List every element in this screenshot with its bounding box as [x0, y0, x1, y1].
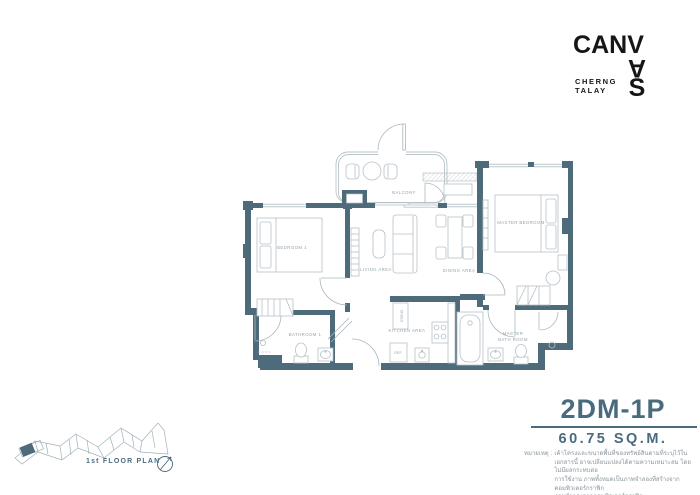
logo-letter: A	[591, 31, 609, 59]
master-bedroom-door	[483, 273, 505, 295]
living-label: LIVING AREA	[360, 267, 392, 272]
ac-unit	[347, 194, 363, 203]
bedroom1-label: BEDROOM 1	[277, 245, 307, 250]
divider-rule	[531, 426, 697, 428]
remark-thai-line1: เค้าโครงและขนาดพื้นที่ของทรัพย์สินตามที่…	[554, 450, 699, 476]
balcony-label: BALCONY	[392, 190, 416, 195]
shoes-cabinet-label: SHOES	[400, 310, 404, 323]
balcony-table-and-chairs	[346, 162, 397, 180]
floor-plan-page: CANV A S CHERNG TALAY	[0, 0, 700, 495]
kitchen-label: KITCHEN AREA	[389, 328, 426, 333]
dining-label: DINING AREA	[443, 268, 476, 273]
bathroom1-label: BATHROOM 1	[289, 332, 322, 337]
master-bathroom-label-line2: BATH ROOM	[498, 337, 528, 342]
shower-door	[540, 312, 558, 330]
refrigerator-label: REF.	[394, 351, 402, 355]
balcony-door-opening	[378, 149, 406, 157]
sliding-door	[375, 203, 438, 207]
terrace-door	[425, 183, 445, 203]
brand-subtitle-line2: TALAY	[575, 87, 607, 95]
master-bedroom-label: MASTER BEDROOM	[497, 220, 545, 225]
remark-thai-label: หมายเหตุ	[524, 450, 551, 476]
balcony-door	[378, 124, 405, 150]
logo-letter: C	[573, 31, 591, 59]
dining-furniture	[436, 215, 473, 259]
bedroom1-door	[320, 278, 347, 305]
brand-subtitle-line1: CHERNG	[575, 78, 617, 86]
living-furniture	[373, 215, 417, 273]
unit-type-code: 2DM-1P	[528, 394, 698, 425]
remark-block: หมายเหตุ : เค้าโครงและขนาดพื้นที่ของทรัพ…	[524, 450, 699, 495]
highlighted-unit	[20, 443, 36, 457]
bedroom1-furniture	[257, 218, 359, 316]
logo-letter: S	[626, 76, 648, 101]
building-key-plan	[12, 418, 187, 483]
key-plan-caption: 1st FLOOR PLAN	[86, 458, 160, 465]
master-bathroom-label-line1: MASTER	[503, 331, 524, 336]
remark-thai-line2: การใช้งาน ภาพทั้งหมดเป็นภาพจำลองที่สร้าง…	[554, 476, 699, 493]
unit-floor-plan: BALCONY	[232, 108, 588, 378]
master-bedroom-furniture	[483, 195, 567, 305]
entry-door-swing	[352, 339, 379, 366]
logo-letter: N	[609, 31, 627, 59]
unit-area: 60.75 SQ.M.	[528, 431, 698, 447]
remark-table: หมายเหตุ : เค้าโครงและขนาดพื้นที่ของทรัพ…	[524, 450, 699, 495]
